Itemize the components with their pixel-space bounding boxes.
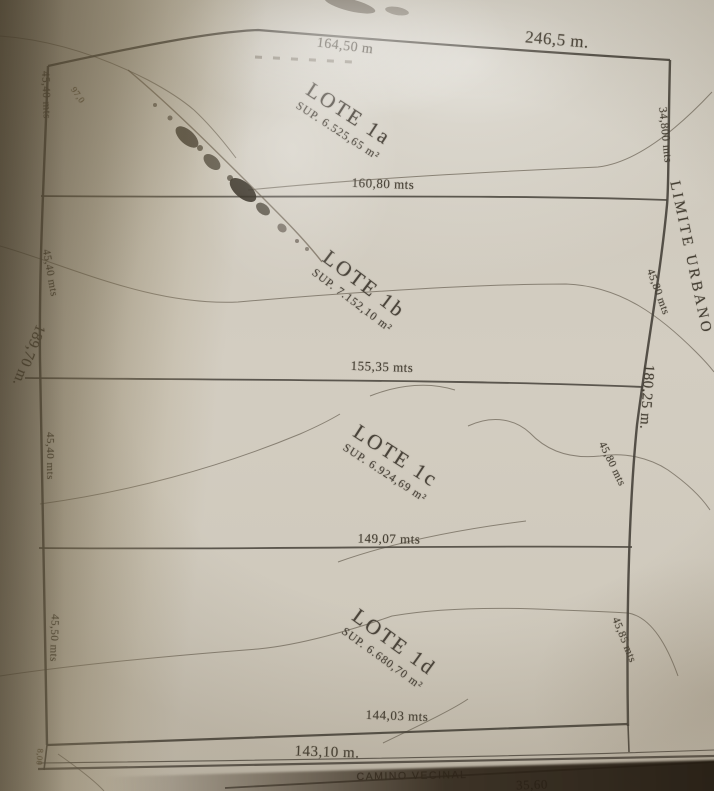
survey-plan-photo: LOTE 1a SUP. 6.525,65 m² LOTE 1b SUP. 7.… (0, 0, 714, 791)
left-boundary-line (40, 66, 48, 745)
division-line-1a-1b (41, 196, 667, 200)
road-name-label: CAMINO VECINAL (356, 769, 467, 783)
right-boundary-stub (628, 724, 629, 752)
bottom-boundary-line (47, 724, 628, 745)
division-line-1c-1d (39, 547, 632, 549)
dimension-label: 144,03 mts (365, 707, 428, 725)
road-line-lower (225, 762, 714, 788)
dimension-label: 143,10 m. (294, 743, 359, 762)
road-line-upper-thin (38, 750, 714, 763)
dimension-label: 45,50 mts (47, 614, 61, 662)
dimension-label: 45,40 mts (44, 432, 56, 480)
dimension-label: 155,35 mts (350, 358, 413, 376)
dimension-label: 160,80 mts (351, 175, 414, 193)
dimension-label: 45,40 mts (39, 71, 53, 119)
road-width-label: 8,00 (34, 748, 45, 766)
division-lines (25, 196, 667, 548)
division-line-1b-1c (25, 378, 643, 387)
dimension-label: 149,07 mts (357, 530, 420, 547)
dimension-label-partial: 35,60 (516, 776, 548, 791)
